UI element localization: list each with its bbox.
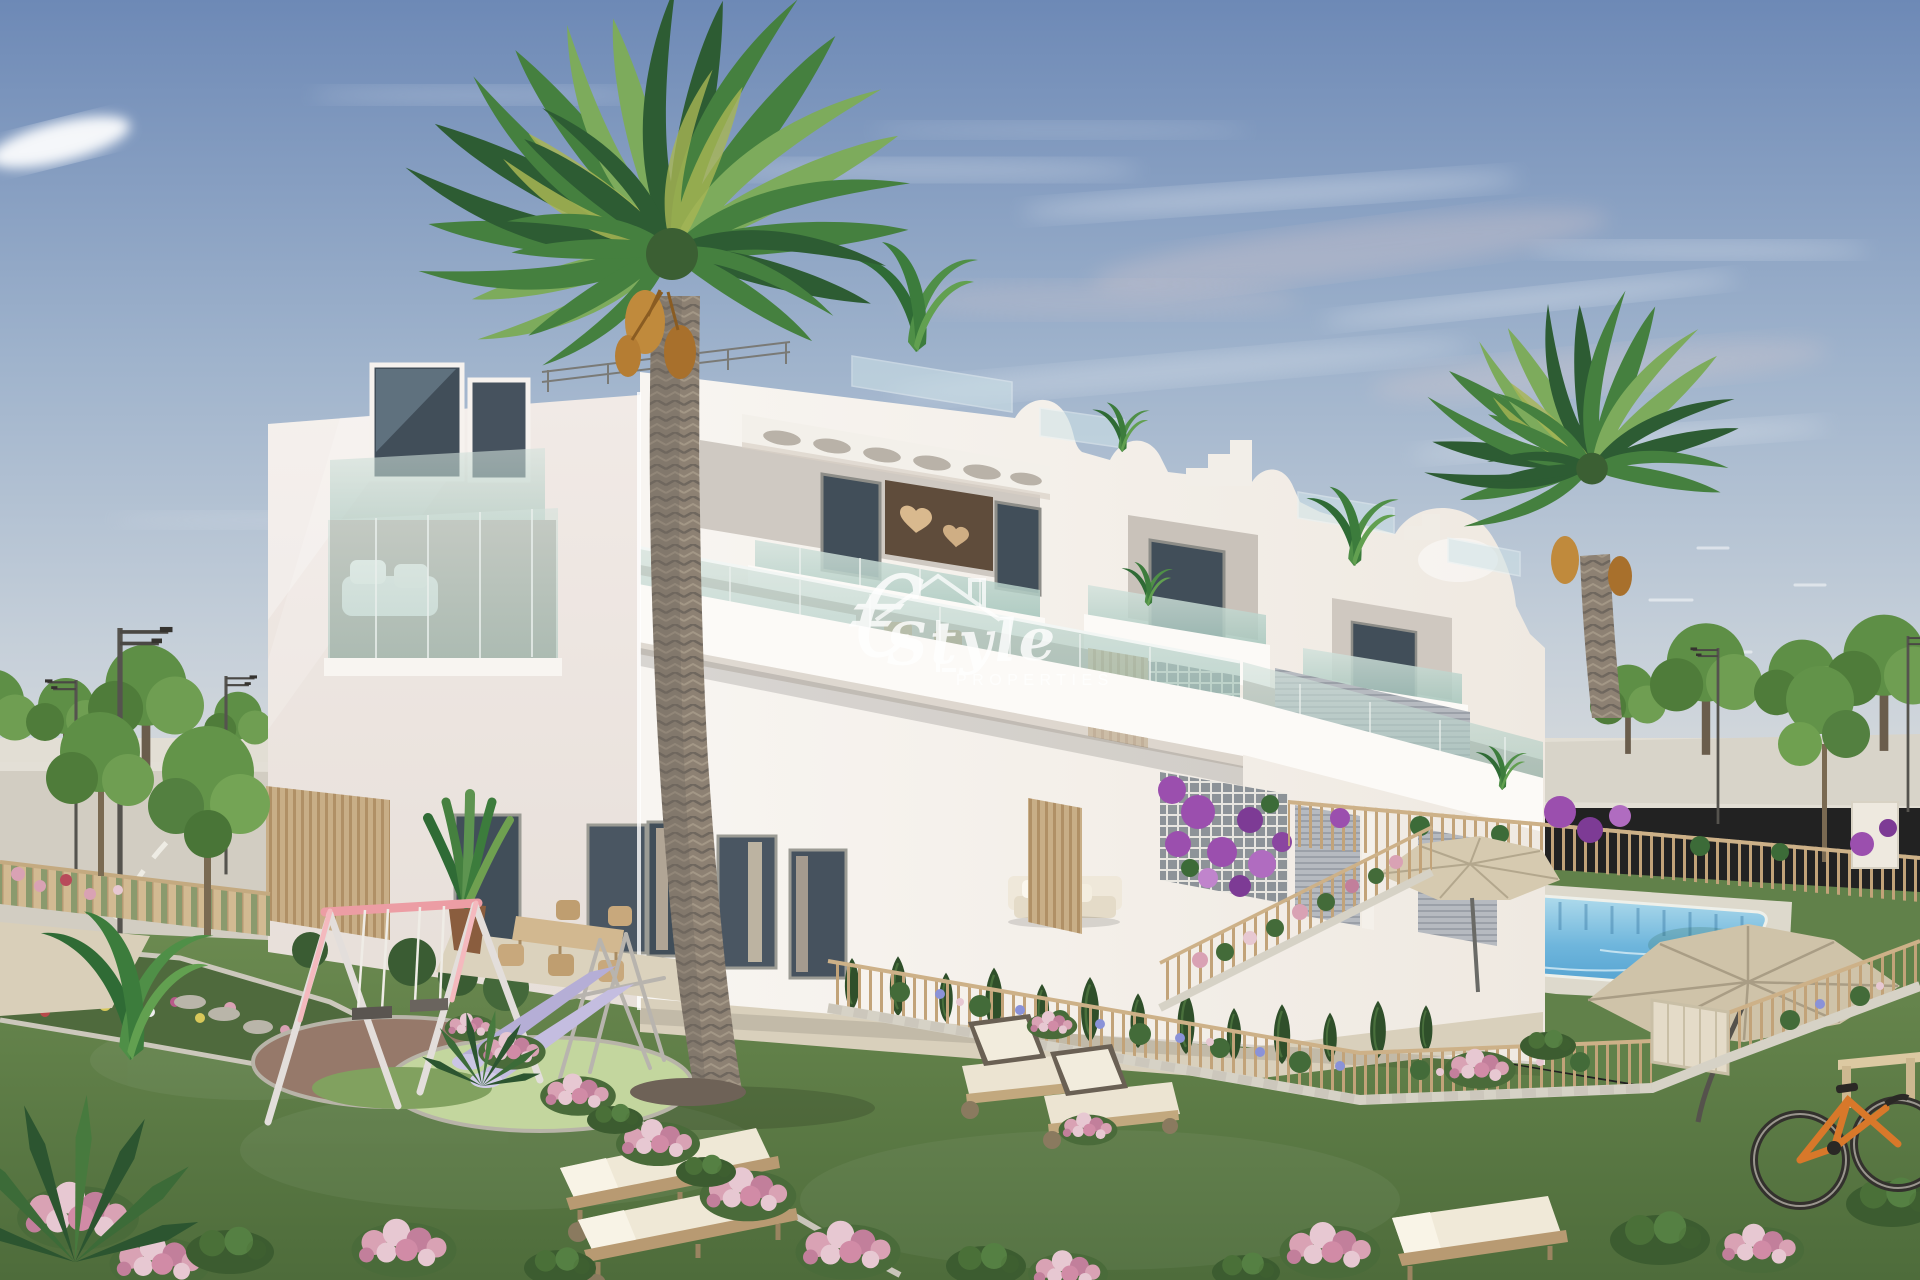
property-render-image: € Style PROPERTIES xyxy=(0,0,1920,1280)
left-middle-balcony xyxy=(324,508,562,676)
rubber-mat-inner xyxy=(312,1067,492,1109)
scene-canvas xyxy=(0,0,1920,1280)
wood-column xyxy=(1028,798,1082,934)
top-window-2 xyxy=(996,502,1040,595)
